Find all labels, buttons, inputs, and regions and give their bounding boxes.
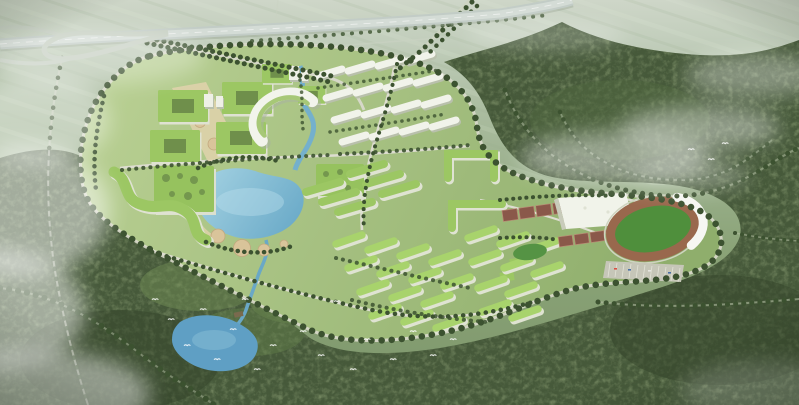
aerial-render-canvas (0, 0, 799, 405)
vignette (0, 0, 799, 405)
masterplan-aerial-view (0, 0, 799, 405)
